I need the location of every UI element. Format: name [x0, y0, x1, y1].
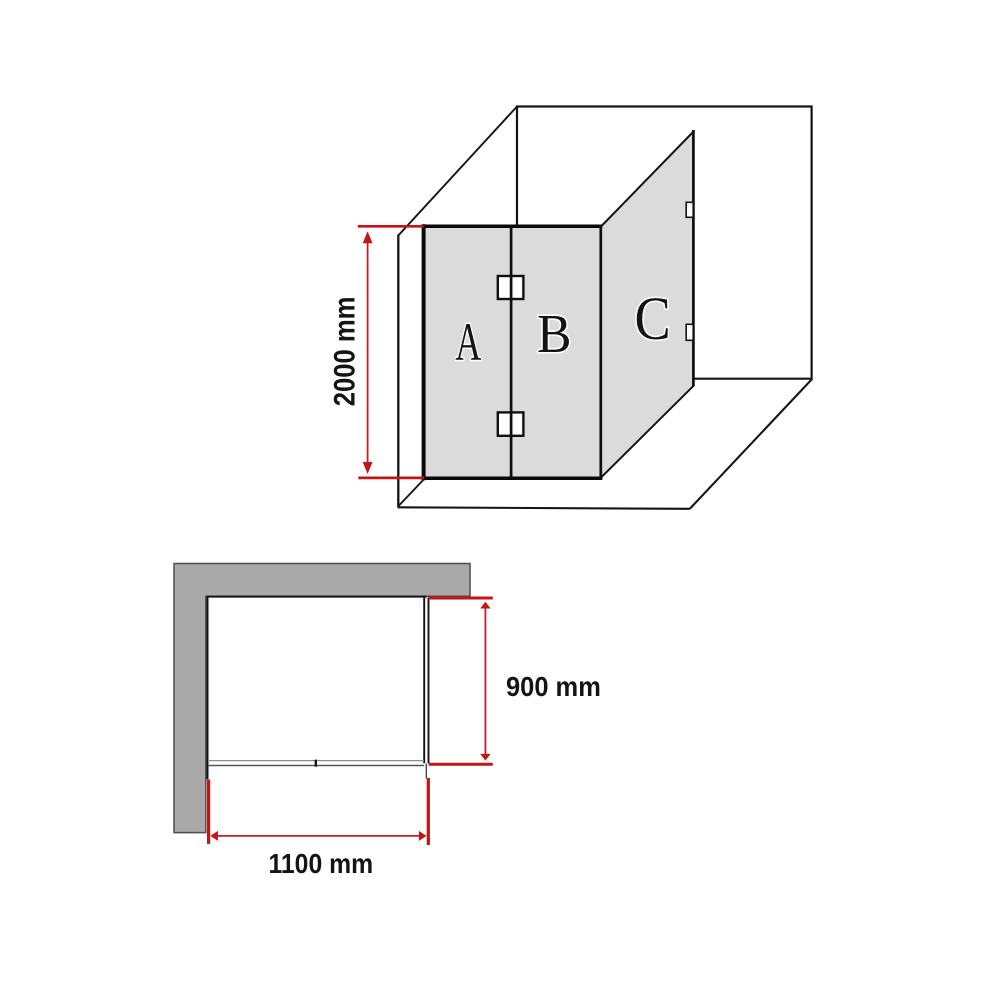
- svg-text:2000 mm: 2000 mm: [327, 297, 360, 407]
- svg-text:B: B: [537, 302, 571, 364]
- svg-text:C: C: [634, 286, 670, 353]
- svg-text:1100 mm: 1100 mm: [269, 848, 374, 880]
- svg-text:900 mm: 900 mm: [506, 671, 601, 702]
- svg-text:A: A: [455, 312, 481, 372]
